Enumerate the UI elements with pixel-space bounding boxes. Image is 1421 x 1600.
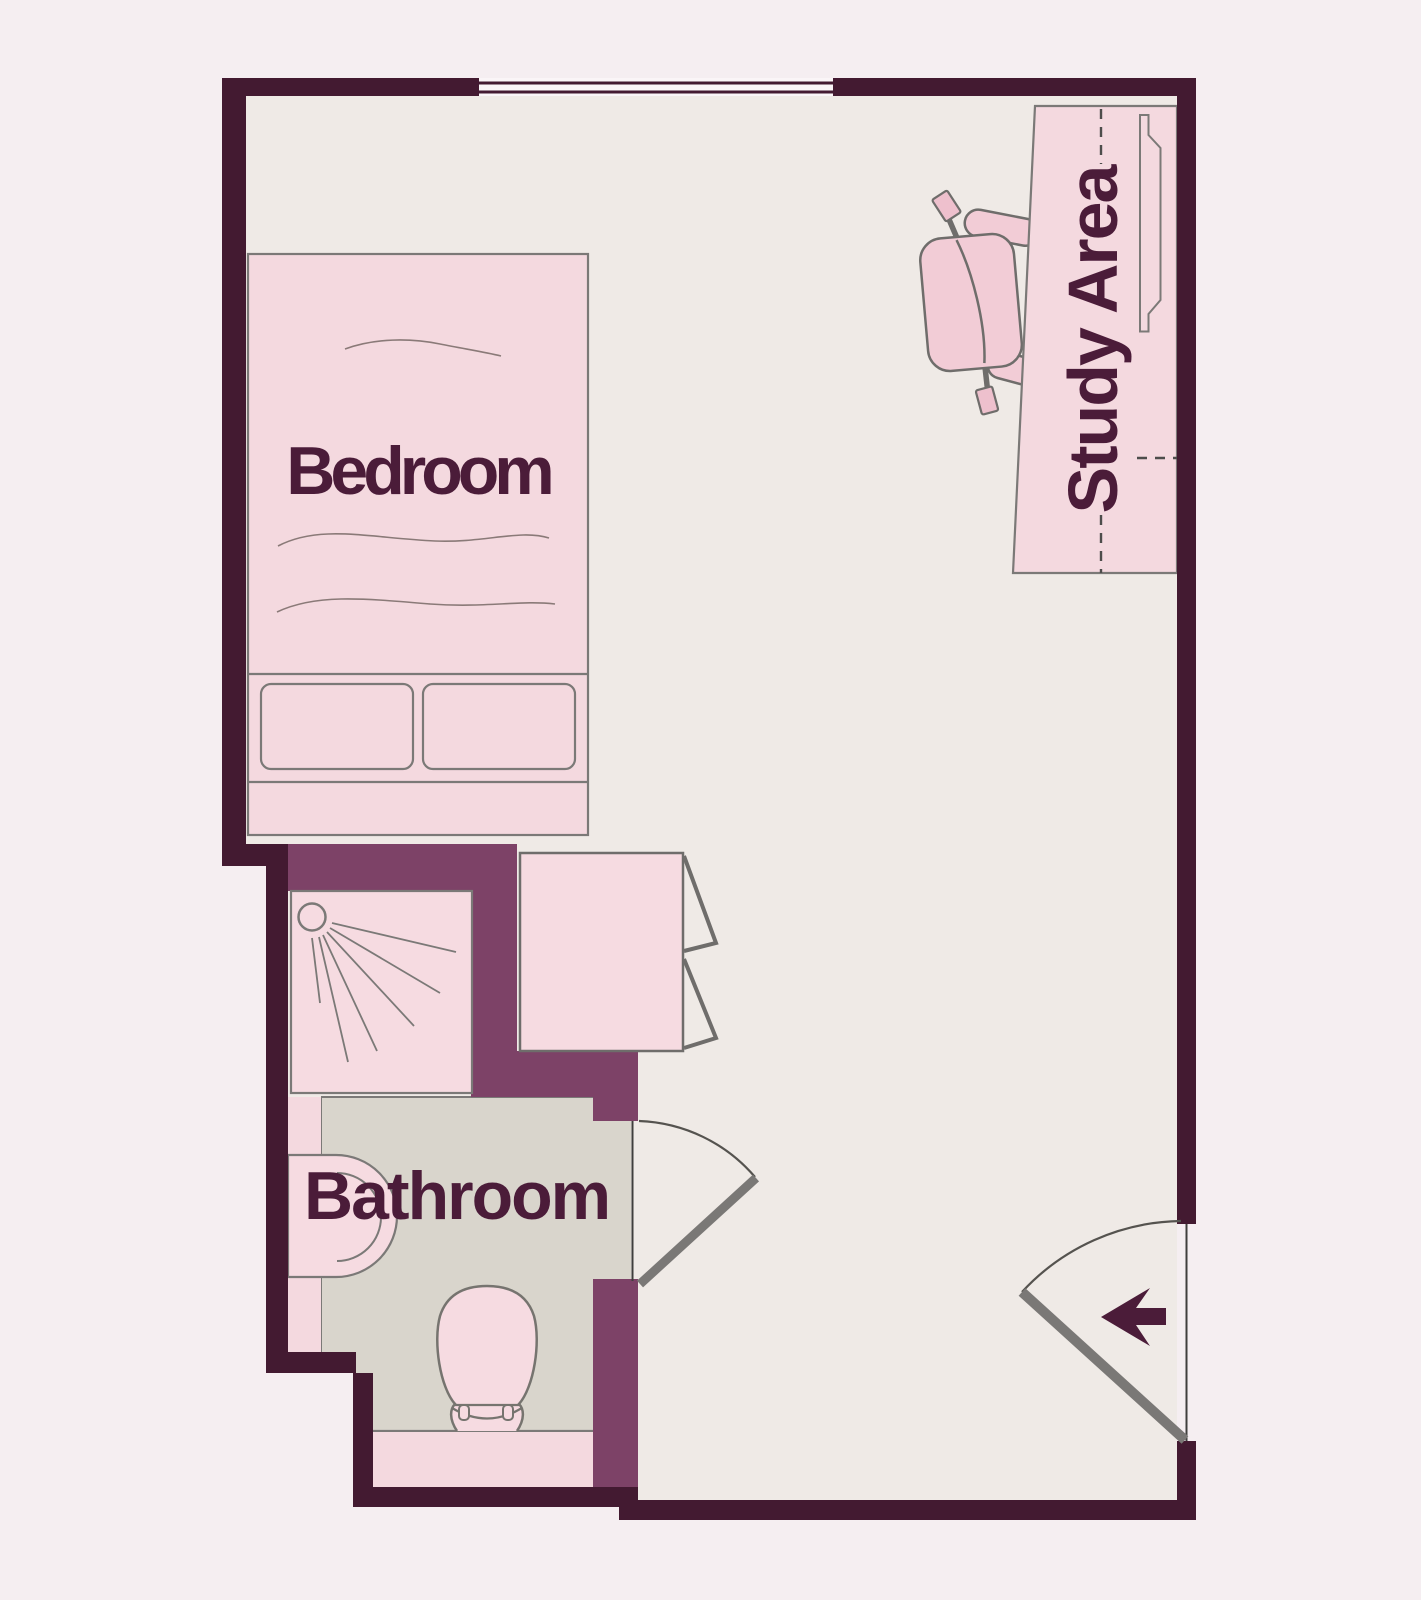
svg-text:Study Area: Study Area (1054, 163, 1132, 513)
svg-text:Bedroom: Bedroom (286, 433, 551, 509)
svg-text:Bathroom: Bathroom (304, 1158, 609, 1234)
